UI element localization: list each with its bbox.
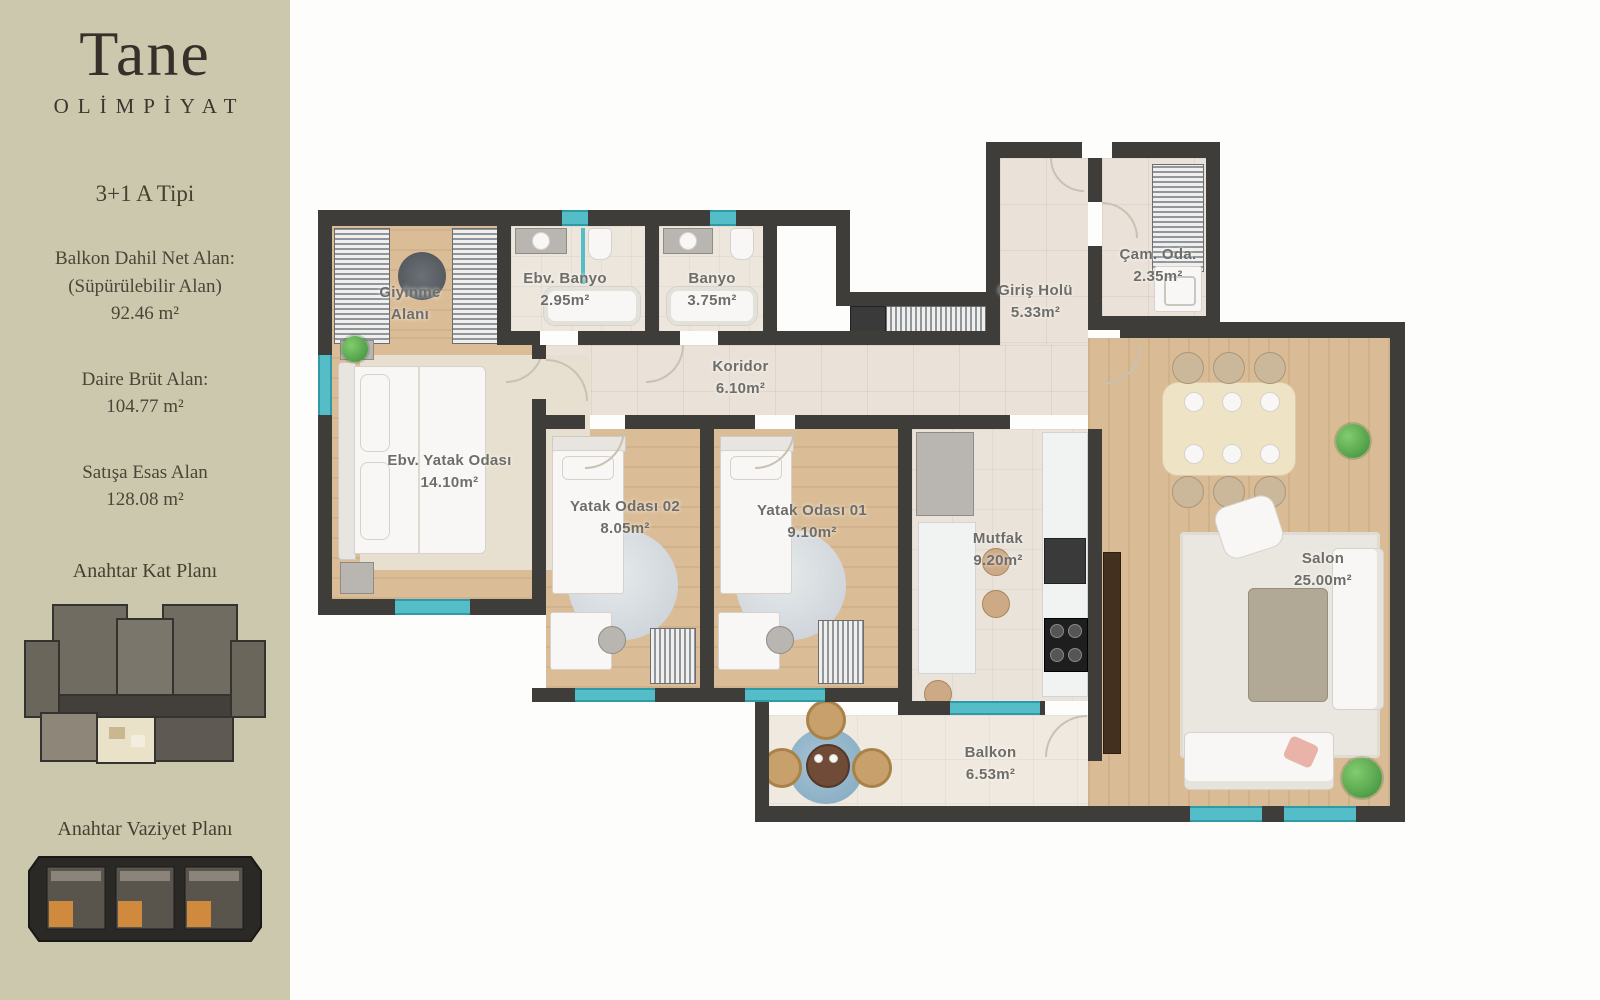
wall bbox=[625, 415, 755, 429]
wall bbox=[986, 142, 1082, 158]
refrigerator bbox=[916, 432, 974, 516]
wardrobe bbox=[650, 628, 696, 684]
potted-plant bbox=[1342, 758, 1382, 798]
place-setting bbox=[1222, 444, 1242, 464]
wall bbox=[1112, 142, 1220, 158]
toilet bbox=[588, 228, 612, 260]
balcony-chair bbox=[852, 748, 892, 788]
wall bbox=[1088, 158, 1102, 202]
stat-label: Daire Brüt Alan: bbox=[82, 369, 209, 390]
key-site-plan-thumbnail bbox=[0, 853, 290, 950]
stat-value: 104.77 m² bbox=[0, 393, 290, 421]
burner bbox=[1068, 648, 1082, 662]
window bbox=[395, 599, 470, 615]
place-setting bbox=[1260, 392, 1280, 412]
coffee-table bbox=[1248, 588, 1328, 702]
room-label-dressing-area: GiyinmeAlanı bbox=[355, 282, 465, 326]
wall bbox=[1145, 806, 1405, 822]
nightstand bbox=[340, 562, 374, 594]
room-label-bedroom-01: Yatak Odası 019.10m² bbox=[732, 500, 892, 544]
place-setting bbox=[1184, 392, 1204, 412]
table-setting bbox=[814, 754, 823, 763]
tv-unit bbox=[1103, 552, 1121, 754]
window bbox=[745, 688, 825, 702]
stat-label: Balkon Dahil Net Alan: bbox=[55, 248, 235, 269]
sink-basin bbox=[532, 232, 550, 250]
wall bbox=[532, 399, 546, 615]
floor-plan: GiyinmeAlanı Ebv. Banyo2.95m² Banyo3.75m… bbox=[300, 140, 1440, 852]
room-label-bathroom: Banyo3.75m² bbox=[652, 268, 772, 312]
stool bbox=[982, 590, 1010, 618]
wall bbox=[795, 415, 898, 429]
table-setting bbox=[829, 754, 838, 763]
brochure-page: Tane OLİMPİYAT 3+1 A Tipi Balkon Dahil N… bbox=[0, 0, 1600, 1000]
stat-value: 92.46 m² bbox=[0, 300, 290, 328]
dining-chair bbox=[1172, 476, 1204, 508]
brand-logo: Tane bbox=[0, 22, 290, 86]
desk-chair bbox=[766, 626, 794, 654]
window bbox=[1190, 806, 1262, 822]
wall bbox=[755, 806, 1151, 822]
key-floor-plan-title: Anahtar Kat Planı bbox=[0, 560, 290, 583]
window bbox=[318, 355, 332, 415]
wall bbox=[545, 415, 585, 429]
window bbox=[950, 701, 1040, 715]
room-label-master-bedroom: Ebv. Yatak Odası14.10m² bbox=[362, 450, 537, 494]
brand-subtitle: OLİMPİYAT bbox=[0, 94, 290, 119]
stat-gross-area: Daire Brüt Alan: 104.77 m² bbox=[0, 366, 290, 421]
wall bbox=[1088, 429, 1102, 715]
place-setting bbox=[1222, 392, 1242, 412]
wall bbox=[718, 331, 1000, 345]
wall bbox=[497, 331, 540, 345]
wall bbox=[836, 292, 986, 306]
sink-basin bbox=[679, 232, 697, 250]
room-label-bedroom-02: Yatak Odası 028.05m² bbox=[545, 496, 705, 540]
room-label-balcony: Balkon6.53m² bbox=[928, 742, 1053, 786]
wall bbox=[700, 429, 714, 700]
wall bbox=[898, 429, 912, 700]
stat-label-2: (Süpürülebilir Alan) bbox=[68, 276, 222, 297]
dining-chair bbox=[1213, 352, 1245, 384]
dining-chair bbox=[1172, 352, 1204, 384]
burner bbox=[1050, 624, 1064, 638]
desk-chair bbox=[598, 626, 626, 654]
pillow bbox=[360, 374, 390, 452]
sidebar: Tane OLİMPİYAT 3+1 A Tipi Balkon Dahil N… bbox=[0, 0, 290, 1000]
room-label-corridor: Koridor6.10m² bbox=[678, 356, 803, 400]
wall bbox=[532, 345, 546, 359]
potted-plant bbox=[342, 336, 368, 362]
wall bbox=[1120, 322, 1405, 338]
wall bbox=[898, 415, 1010, 429]
window bbox=[575, 688, 655, 702]
wall bbox=[578, 331, 680, 345]
room-label-living-room: Salon25.00m² bbox=[1258, 548, 1388, 592]
potted-plant bbox=[1336, 424, 1370, 458]
room-label-kitchen: Mutfak9.20m² bbox=[938, 528, 1058, 572]
stat-value: 128.08 m² bbox=[0, 486, 290, 514]
stat-label: Satışa Esas Alan bbox=[82, 462, 208, 483]
balcony-chair bbox=[806, 700, 846, 740]
dining-chair bbox=[1254, 352, 1286, 384]
window bbox=[562, 210, 588, 226]
place-setting bbox=[1260, 444, 1280, 464]
key-floor-plan-thumbnail bbox=[0, 595, 290, 772]
place-setting bbox=[1184, 444, 1204, 464]
burner bbox=[1068, 624, 1082, 638]
window bbox=[710, 210, 736, 226]
floor-corridor bbox=[545, 345, 1095, 415]
key-site-plan-title: Anahtar Vaziyet Planı bbox=[0, 818, 290, 841]
unit-type-label: 3+1 A Tipi bbox=[0, 181, 290, 207]
wall bbox=[1390, 322, 1405, 822]
toilet bbox=[730, 228, 754, 260]
wall bbox=[1088, 701, 1102, 761]
room-label-entry-hall: Giriş Holü5.33m² bbox=[968, 280, 1103, 324]
balcony-table bbox=[806, 744, 850, 788]
stat-net-area: Balkon Dahil Net Alan: (Süpürülebilir Al… bbox=[0, 245, 290, 328]
window bbox=[1284, 806, 1356, 822]
room-label-laundry: Çam. Oda.2.35m² bbox=[1098, 244, 1218, 288]
burner bbox=[1050, 648, 1064, 662]
wardrobe bbox=[818, 620, 864, 684]
stat-sales-area: Satışa Esas Alan 128.08 m² bbox=[0, 459, 290, 514]
wall bbox=[755, 700, 769, 822]
room-label-ensuite-bath: Ebv. Banyo2.95m² bbox=[500, 268, 630, 312]
